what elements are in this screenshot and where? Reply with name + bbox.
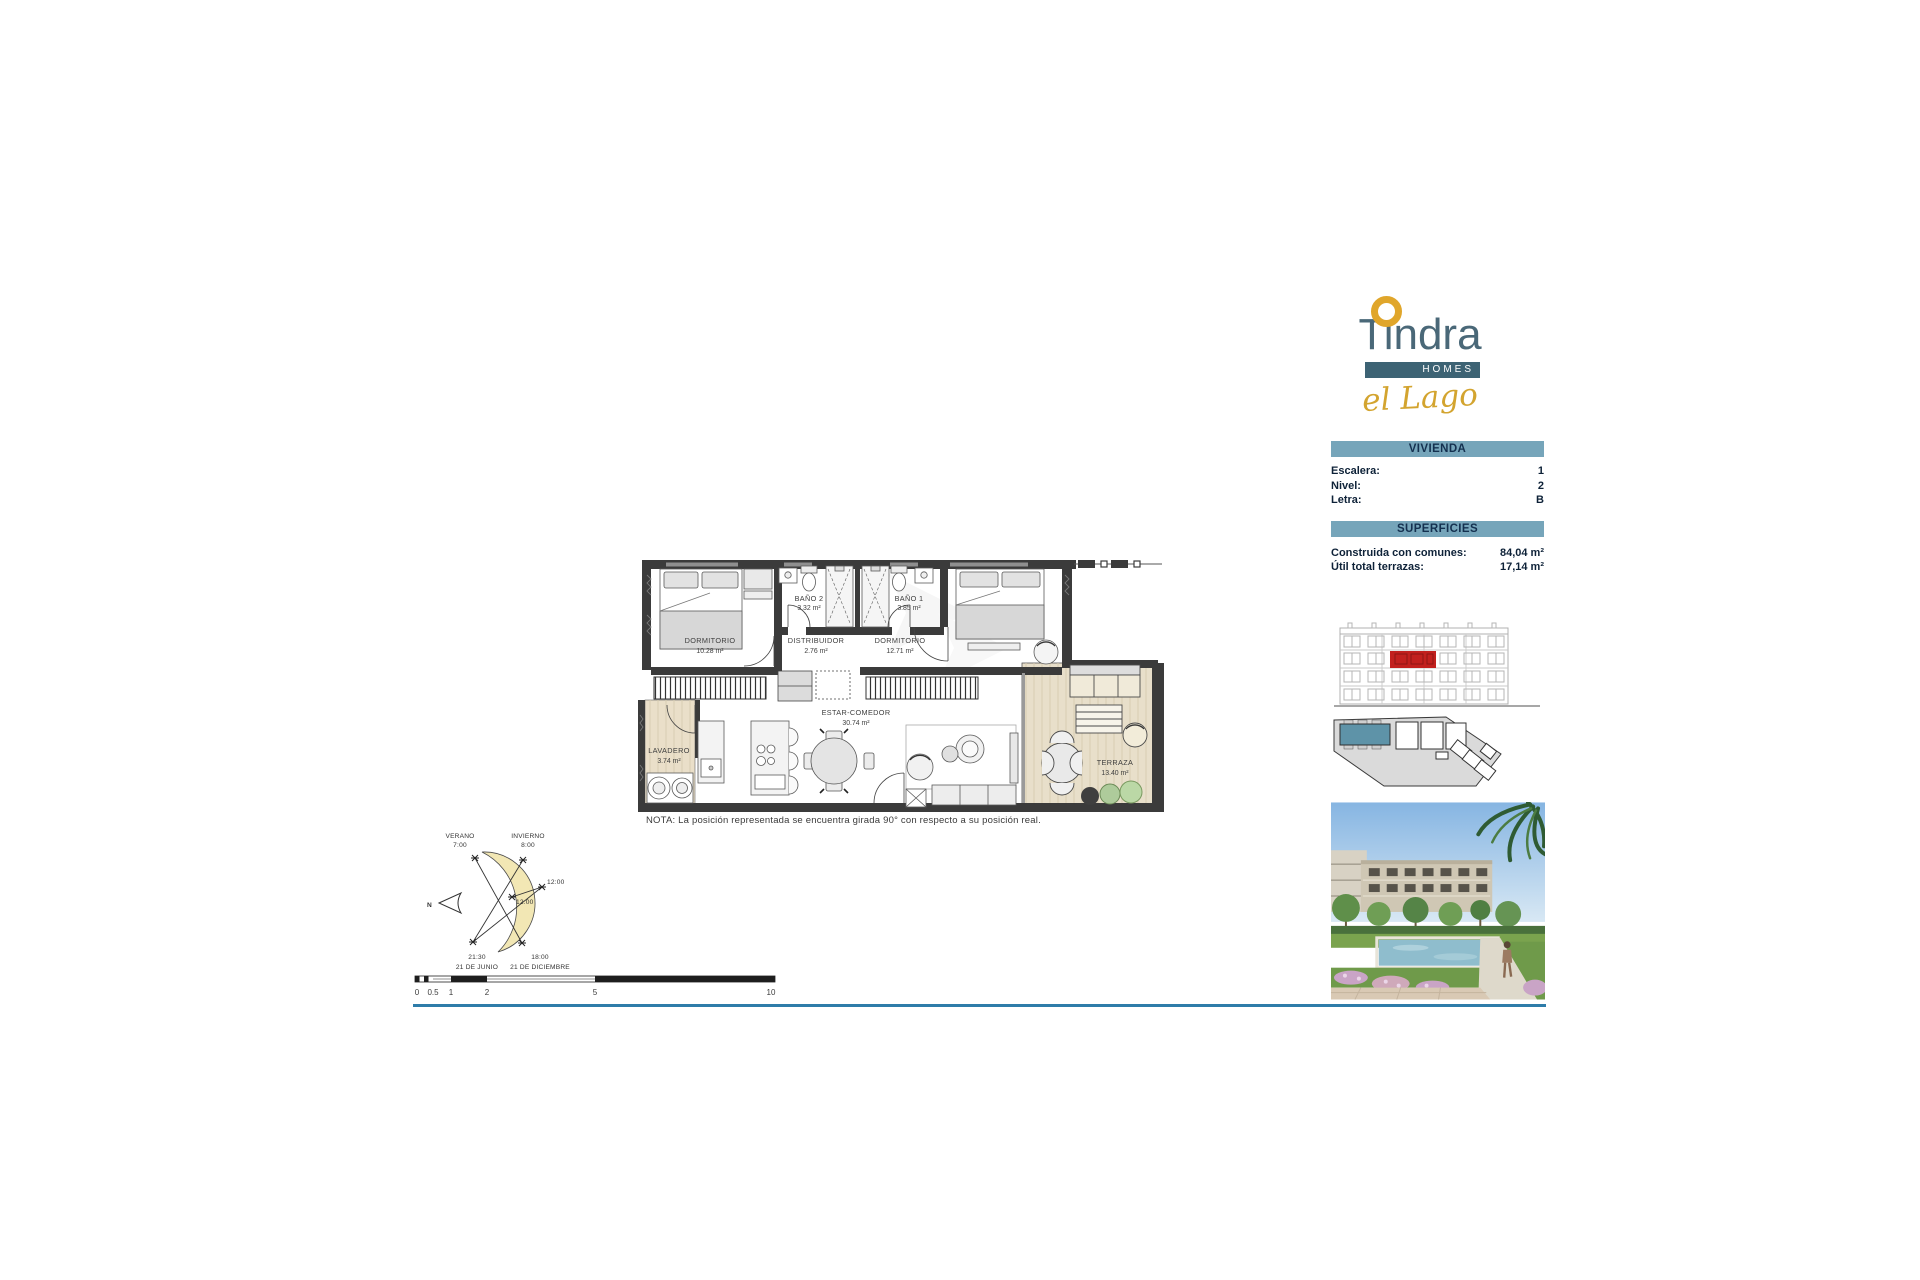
footer-separator-line [413,1004,1546,1007]
room-area-bano1: 3.85 m² [897,605,921,612]
rotation-note: NOTA: La posición representada se encuen… [646,815,1206,826]
nivel-value: 2 [1538,479,1544,494]
construida-label: Construida con comunes: [1331,546,1467,561]
room-area-terraza: 13.40 m² [1101,770,1129,777]
verano-label: VERANO [445,833,474,840]
collection-name: el Lago [1339,376,1501,420]
superficies-header: SUPERFICIES [1331,521,1544,537]
brand-ring-icon [1371,296,1402,327]
site-plan-locator [1332,710,1545,798]
room-area-lavadero: 3.74 m² [657,758,681,765]
sun-path-diagram: N VERANO 7:00 INVIERNO 8:00 21:30 21 DE … [408,826,593,978]
terrace-glass-door [1022,673,1025,803]
scale-tick-2: 2 [485,988,490,997]
invierno-end-time: 18:00 [531,954,549,961]
terrazas-value: 17,14 m² [1500,560,1544,575]
room-area-dormitorio1: 10.28 m² [696,648,724,655]
row-letra: Letra: B [1331,493,1544,508]
kitchen [698,721,798,795]
row-construida: Construida con comunes: 84,04 m² [1331,546,1544,561]
pool [1379,940,1496,966]
plan-sheet: DORMITORIO 10.28 m² BAÑO 2 3.32 m² BAÑO … [0,0,1920,1280]
brand-name: Tindra [1340,310,1500,360]
invierno-label: INVIERNO [511,833,544,840]
row-terrazas: Útil total terrazas: 17,14 m² [1331,560,1544,575]
room-label-lavadero: LAVADERO [648,746,689,755]
terrazas-label: Útil total terrazas: [1331,560,1424,575]
room-label-dormitorio1: DORMITORIO [685,636,736,645]
highlighted-block [1340,724,1390,745]
room-area-estar: 30.74 m² [842,720,870,727]
room-area-bano2: 3.32 m² [797,605,821,612]
nivel-label: Nivel: [1331,479,1361,494]
row-nivel: Nivel: 2 [1331,479,1544,494]
verano-date: 21 DE JUNIO [456,964,498,971]
section-line [1074,560,1162,568]
letra-value: B [1536,493,1544,508]
row-escalera: Escalera: 1 [1331,464,1544,479]
hall-cabinets [778,671,850,701]
room-label-dormitorio2: DORMITORIO [875,636,926,645]
floor-vents [654,677,978,699]
dining-table [804,729,874,793]
dormitorio2-furniture [956,569,1058,664]
north-compass-icon [439,893,461,913]
floor-plan: DORMITORIO 10.28 m² BAÑO 2 3.32 m² BAÑO … [638,553,1170,815]
scale-tick-0: 0 [415,988,420,997]
escalera-label: Escalera: [1331,464,1380,479]
room-label-bano1: BAÑO 1 [895,594,924,603]
building-elevation-locator [1332,620,1545,714]
room-area-dormitorio2: 12.71 m² [886,648,914,655]
noon-center-label: 12:00 [516,899,534,906]
construida-value: 84,04 m² [1500,546,1544,561]
escalera-value: 1 [1538,464,1544,479]
tindra-logo: Tindra HOMES el Lago [1340,294,1500,424]
invierno-date: 21 DE DICIEMBRE [510,964,570,971]
verano-end-time: 21:30 [468,954,486,961]
room-label-terraza: TERRAZA [1097,758,1134,767]
north-label: N [427,902,432,909]
noon-right-label: 12:00 [547,879,565,886]
vivienda-header: VIVIENDA [1331,441,1544,457]
property-render-photo [1331,802,1545,1000]
letra-label: Letra: [1331,493,1362,508]
unit-info-panel: VIVIENDA Escalera: 1 Nivel: 2 Letra: B S… [1331,441,1544,575]
invierno-start-time: 8:00 [521,842,535,849]
room-area-distribuidor: 2.76 m² [804,648,828,655]
scale-tick-1: 1 [449,988,454,997]
room-label-estar: ESTAR-COMEDOR [822,708,891,717]
laundry-fixtures [647,773,693,803]
scale-tick-05: 0.5 [427,988,439,997]
scale-bar: 0 0.5 1 2 5 10 [413,974,781,1002]
scale-tick-10: 10 [767,988,776,997]
brand-homes-label: HOMES [1365,362,1480,378]
scale-tick-5: 5 [593,988,598,997]
living-furniture [906,725,1018,807]
room-label-bano2: BAÑO 2 [795,594,824,603]
room-label-distribuidor: DISTRIBUIDOR [788,636,845,645]
verano-start-time: 7:00 [453,842,467,849]
